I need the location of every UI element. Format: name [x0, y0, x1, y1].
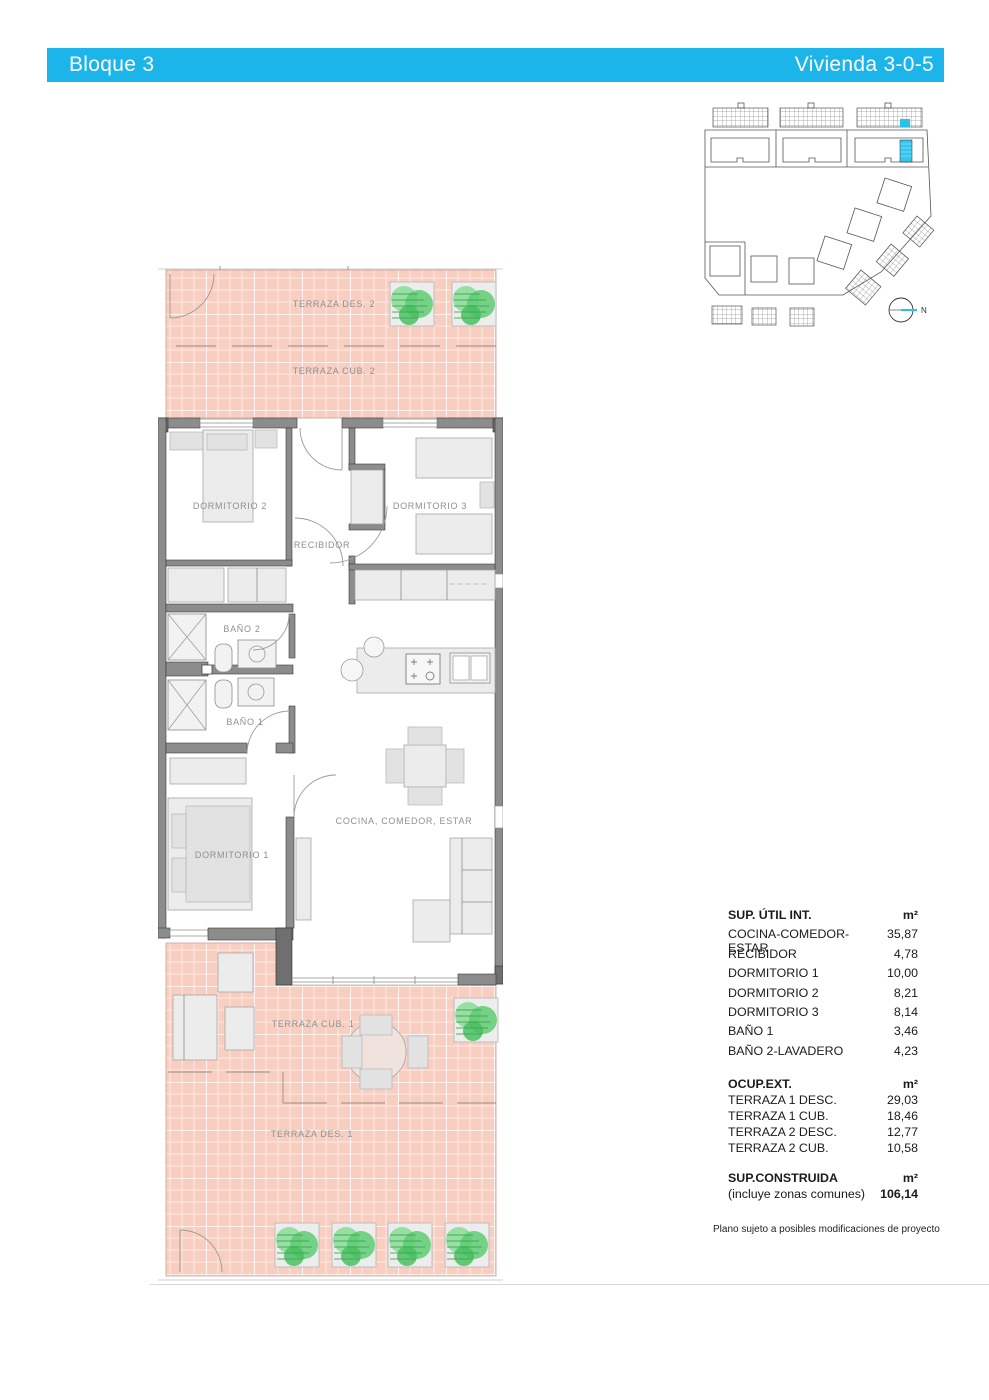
table-header: SUP. ÚTIL INT. m²: [728, 908, 918, 927]
wardrobe: [355, 570, 495, 600]
ground-line: [150, 1284, 989, 1285]
wardrobe: [170, 758, 246, 784]
table-row: BAÑO 13,46: [728, 1024, 918, 1043]
table-chair: [360, 1015, 392, 1035]
toilet: [215, 680, 232, 708]
villa: [751, 256, 777, 282]
outdoor-sofa: [173, 995, 217, 1060]
washbasin: [238, 678, 274, 706]
exterior-areas-section: OCUP.EXT. m² TERRAZA 1 DESC.29,03 TERRAZ…: [728, 1077, 918, 1157]
plant: [275, 1223, 319, 1267]
floor-plan-drawing: TERRAZA DES. 2 TERRAZA CUB. 2 TERRA: [158, 266, 503, 1288]
room-label-terraza-des-2: TERRAZA DES. 2: [293, 299, 375, 309]
floor-plan: TERRAZA DES. 2 TERRAZA CUB. 2 TERRA: [158, 266, 503, 1288]
built-area-section: SUP.CONSTRUIDA m² (incluye zonas comunes…: [728, 1171, 918, 1203]
dining-chair: [386, 749, 404, 783]
table-row: DORMITORIO 28,21: [728, 986, 918, 1005]
room-label-dormitorio-1: DORMITORIO 1: [195, 850, 269, 860]
room-label-dormitorio-3: DORMITORIO 3: [393, 501, 467, 511]
block-title: Bloque 3: [69, 53, 154, 77]
room-label-bano-2: BAÑO 2: [223, 624, 260, 634]
room-label-terraza-des-1: TERRAZA DES. 1: [271, 1129, 353, 1139]
table-row: DORMITORIO 38,14: [728, 1005, 918, 1024]
north-compass: N: [889, 298, 927, 322]
highlight-unit-pergola: [900, 119, 910, 127]
plant: [454, 998, 498, 1042]
table-row: TERRAZA 2 DESC.12,77: [728, 1125, 918, 1141]
villa: [710, 246, 740, 276]
building-1: [711, 138, 769, 162]
room-label-bano-1: BAÑO 1: [226, 717, 263, 727]
villa: [789, 258, 814, 284]
site-plan: N: [695, 98, 945, 333]
building-2: [783, 138, 841, 162]
sofa: [450, 838, 492, 934]
villa: [877, 178, 912, 211]
table-row: TERRAZA 1 CUB.18,46: [728, 1109, 918, 1125]
plan-sheet: Bloque 3 Vivienda 3-0-5: [0, 0, 989, 1400]
outdoor-chair: [218, 953, 253, 992]
bed: [416, 514, 492, 554]
table-chair: [408, 1036, 428, 1068]
dining-chair: [408, 727, 442, 745]
table-row: COCINA-COMEDOR-ESTAR35,87: [728, 927, 918, 946]
outdoor-chair: [225, 1007, 254, 1050]
disclaimer-note: Plano sujeto a posibles modificaciones d…: [713, 1224, 940, 1235]
table-row: TERRAZA 2 CUB.10,58: [728, 1141, 918, 1157]
section-title: SUP. ÚTIL INT.: [728, 908, 812, 922]
areas-panel: SUP. ÚTIL INT. m² COCINA-COMEDOR-ESTAR35…: [728, 908, 918, 1203]
site-plan-drawing: N: [695, 98, 945, 333]
room-label-cocina: COCINA, COMEDOR, ESTAR: [336, 816, 473, 826]
room-label-terraza-cub-2: TERRAZA CUB. 2: [293, 366, 376, 376]
table-row: TERRAZA 1 DESC.29,03: [728, 1093, 918, 1109]
plant: [390, 282, 434, 326]
dining-chair: [446, 749, 464, 783]
armchair: [413, 900, 450, 942]
stove: [406, 654, 440, 684]
table-chair: [342, 1036, 362, 1068]
plant: [452, 282, 496, 326]
wardrobe: [168, 568, 224, 602]
table-row: (incluye zonas comunes) 106,14: [728, 1187, 918, 1203]
plant: [332, 1223, 376, 1267]
room-label-terraza-cub-1: TERRAZA CUB. 1: [272, 1019, 355, 1029]
terraza-1-area: TERRAZA CUB. 1 TERRAZA DES. 1: [166, 943, 498, 1276]
unit-label: m²: [903, 1171, 918, 1185]
table-header: OCUP.EXT. m²: [728, 1077, 918, 1093]
unit-label: m²: [903, 1077, 918, 1091]
plant: [388, 1223, 432, 1267]
villa: [847, 208, 882, 241]
unit-title: Vivienda 3-0-5: [795, 53, 934, 77]
closet: [351, 470, 383, 524]
terraza-2-area: TERRAZA DES. 2 TERRAZA CUB. 2: [166, 270, 496, 418]
dining-chair: [408, 787, 442, 805]
table-header: SUP.CONSTRUIDA m²: [728, 1171, 918, 1187]
villa: [817, 236, 852, 269]
section-title: OCUP.EXT.: [728, 1077, 792, 1091]
table-chair: [360, 1069, 392, 1089]
section-title: SUP.CONSTRUIDA: [728, 1171, 838, 1185]
room-label-dormitorio-2: DORMITORIO 2: [193, 501, 267, 511]
window: [170, 930, 208, 936]
table-row: DORMITORIO 110,00: [728, 966, 918, 985]
toilet: [215, 644, 232, 672]
tv-unit: [296, 838, 311, 920]
bed: [416, 438, 492, 478]
window: [495, 574, 503, 588]
room-label-recibidor: RECIBIDOR: [294, 540, 350, 550]
highlight-unit: [900, 140, 912, 162]
building-3: [855, 138, 923, 162]
washbasin: [238, 640, 276, 668]
north-label: N: [921, 306, 927, 315]
dining-table: [404, 745, 446, 787]
window: [495, 806, 503, 828]
interior-areas-section: SUP. ÚTIL INT. m² COCINA-COMEDOR-ESTAR35…: [728, 908, 918, 1063]
unit-label: m²: [903, 908, 918, 922]
plant: [445, 1223, 489, 1267]
title-bar: Bloque 3 Vivienda 3-0-5: [47, 48, 944, 82]
table-row: BAÑO 2-LAVADERO4,23: [728, 1044, 918, 1063]
